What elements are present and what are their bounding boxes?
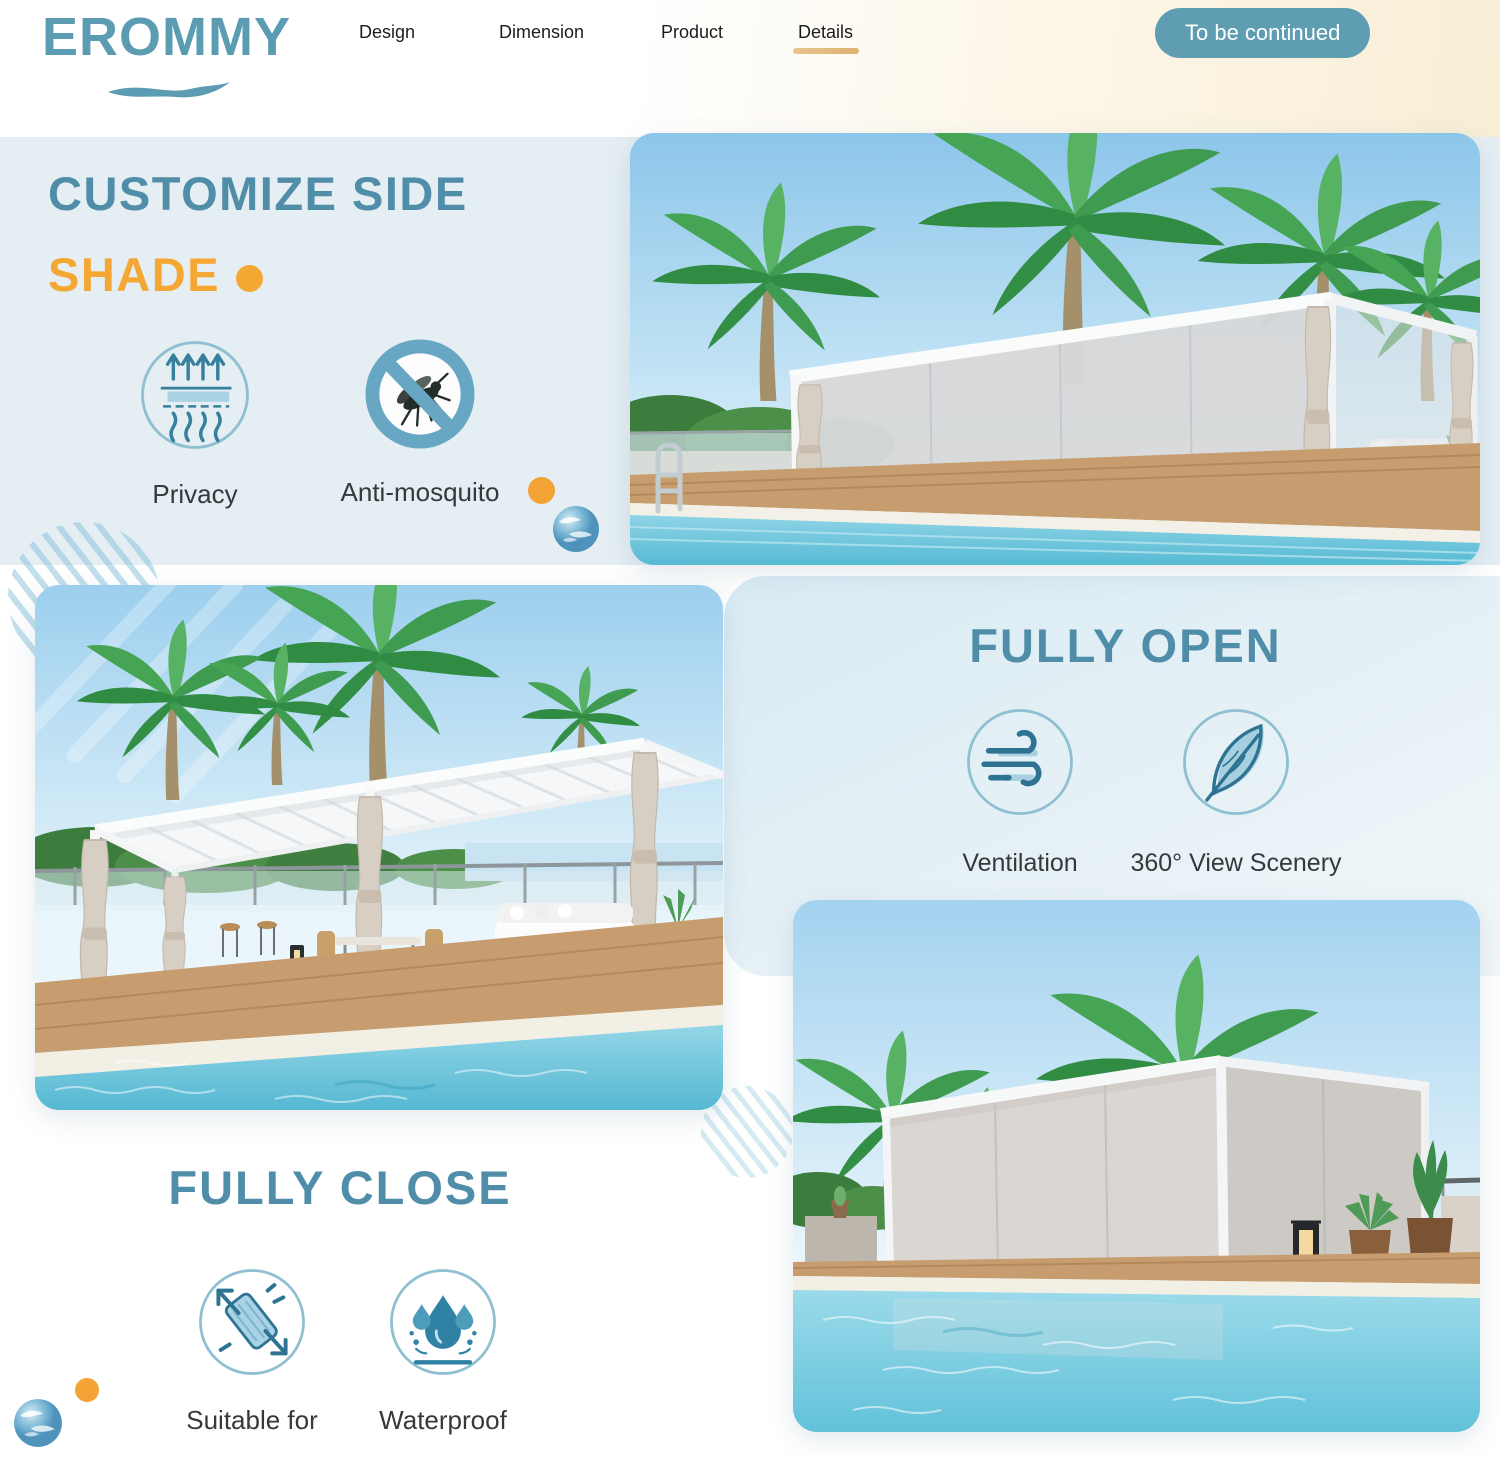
photo-pergola-mesh-sides (630, 133, 1480, 565)
feature-ventilation: Ventilation (964, 706, 1110, 878)
nav-item-product[interactable]: Product (661, 22, 723, 43)
photo-pergola-fully-open (35, 585, 723, 1110)
brand-logo: EROMMY (42, 6, 291, 68)
feature-anti-mosquito: Anti-mosquito (362, 336, 510, 508)
feature-label: Suitable for (160, 1405, 344, 1436)
orange-dot (236, 265, 263, 292)
globe-decoration (12, 1397, 64, 1449)
fully-open-title: FULLY OPEN (953, 622, 1298, 669)
photo-pergola-fully-closed (793, 900, 1480, 1432)
to-be-continued-button[interactable]: To be continued (1155, 8, 1370, 58)
customize-title-line2: SHADE (48, 251, 263, 298)
accent-dot (528, 477, 555, 504)
privacy-mesh-icon (138, 338, 252, 452)
nav-item-details[interactable]: Details (798, 22, 853, 43)
wind-icon (964, 706, 1076, 818)
no-mosquito-icon (362, 336, 478, 452)
waterdrops-icon (387, 1266, 499, 1378)
feature-suitable: Suitable for (196, 1266, 344, 1436)
page: EROMMY Design Dimension Product Details … (0, 0, 1500, 1457)
fully-close-title: FULLY CLOSE (167, 1164, 513, 1211)
feature-label: Waterproof (351, 1405, 535, 1436)
feature-360-view: 360° View Scenery (1180, 706, 1356, 878)
customize-title-line1: CUSTOMIZE SIDE (48, 170, 468, 217)
feature-label: 360° View Scenery (1116, 849, 1356, 878)
nav-item-design[interactable]: Design (359, 22, 415, 43)
feature-label: Anti-mosquito (330, 477, 510, 508)
nav-item-dimension[interactable]: Dimension (499, 22, 584, 43)
accent-dot (75, 1378, 99, 1402)
feature-label: Privacy (138, 479, 252, 510)
stretch-fabric-icon (196, 1266, 308, 1378)
customize-title-text: SHADE (48, 248, 220, 301)
feather-icon (1180, 706, 1292, 818)
feature-privacy: Privacy (138, 338, 252, 510)
feature-waterproof: Waterproof (387, 1266, 535, 1436)
logo-wave-icon (106, 80, 232, 100)
globe-decoration (551, 504, 601, 554)
details-underline (793, 48, 859, 54)
feature-label: Ventilation (930, 849, 1110, 878)
